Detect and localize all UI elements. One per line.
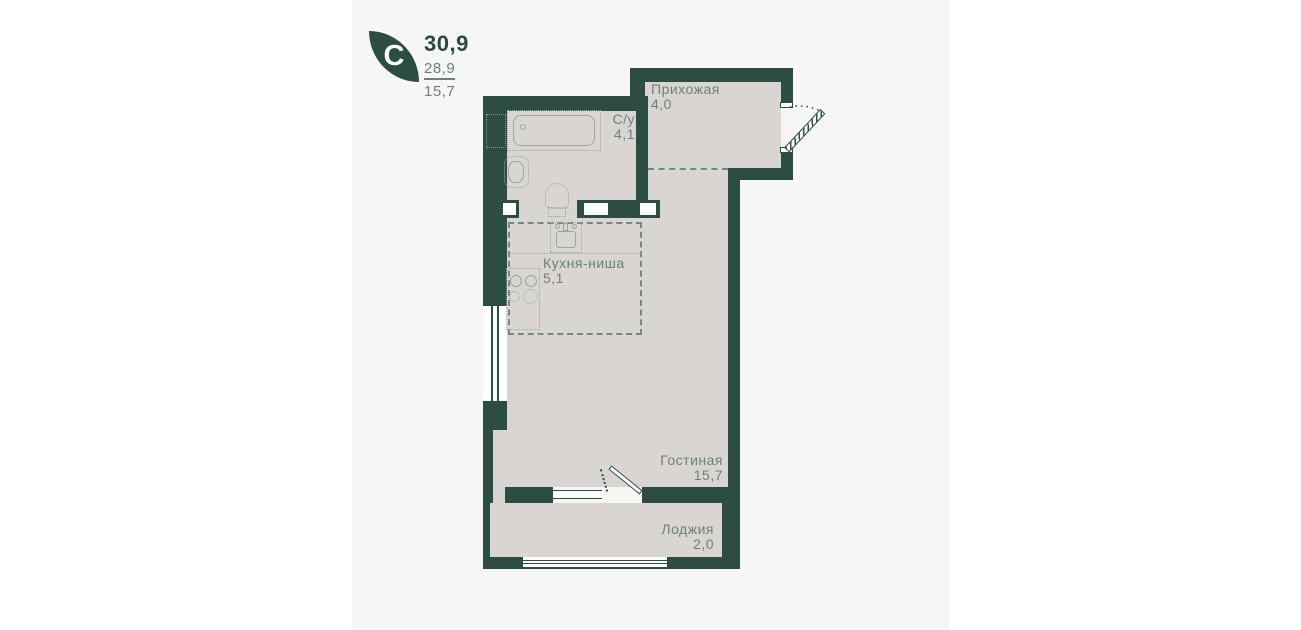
floorplan-panel: C 30,9 28,9 15,7 — [352, 0, 949, 630]
wall-stub-inset — [503, 203, 516, 215]
wall-interior-right — [577, 200, 660, 218]
kitchen-sink-basin — [556, 231, 576, 248]
wall-loggia-left — [483, 503, 490, 557]
room-label-bathroom: С/у 4,1 — [535, 112, 635, 141]
wall-stub — [500, 200, 519, 218]
room-area: 2,0 — [614, 537, 714, 551]
room-label-loggia: Лоджия 2,0 — [614, 522, 714, 551]
toilet-cistern — [548, 207, 566, 217]
stove-burner — [510, 275, 522, 287]
room-area: 4,0 — [651, 97, 720, 111]
room-label-living: Гостиная 15,7 — [623, 453, 723, 482]
wall-left-lower — [483, 430, 493, 503]
wall-hallway-bottom — [728, 168, 793, 180]
window-living-loggia — [553, 490, 602, 499]
wall-left-mid — [483, 401, 507, 430]
room-name: С/у — [613, 111, 636, 127]
room-area: 4,1 — [535, 127, 635, 141]
entrance-door-swing-arc — [780, 98, 844, 156]
stove-burner — [525, 275, 537, 287]
room-name: Прихожая — [651, 81, 720, 97]
window-mullion — [491, 306, 493, 401]
room-label-hallway: Прихожая 4,0 — [651, 82, 720, 111]
page: C 30,9 28,9 15,7 — [0, 0, 1301, 630]
towel-radiator — [486, 114, 506, 148]
room-area: 5,1 — [543, 271, 625, 285]
kitchen-faucet-knob — [572, 224, 577, 229]
bathroom-sink-basin — [508, 161, 524, 183]
wall-loggia-divider-right — [642, 487, 728, 503]
hallway-zone-boundary — [648, 168, 728, 170]
kitchen-faucet — [563, 223, 568, 231]
room-label-kitchen: Кухня-ниша 5,1 — [543, 256, 625, 285]
bathtub-faucet — [520, 124, 526, 130]
toilet-bowl — [545, 183, 569, 209]
wall-bathroom-right — [636, 96, 648, 200]
window-mullion — [497, 306, 499, 401]
stove-burner — [509, 291, 520, 302]
wall-hallway-top — [630, 68, 793, 82]
room-name: Кухня-ниша — [543, 255, 625, 271]
wall-main-top — [483, 96, 648, 111]
window-glazing-line — [523, 563, 667, 564]
kitchen-counter-line — [509, 253, 641, 254]
window-loggia — [523, 557, 667, 567]
duct-inset-2 — [640, 203, 656, 215]
window-glazing-line — [523, 560, 667, 561]
stove-burner — [523, 289, 538, 304]
window-left — [483, 306, 507, 401]
room-name: Гостиная — [660, 452, 723, 468]
kitchen-faucet-knob — [555, 224, 560, 229]
room-area: 15,7 — [623, 468, 723, 482]
wall-main-right — [728, 180, 740, 503]
room-name: Лоджия — [661, 521, 714, 537]
wall-loggia-right — [722, 503, 740, 569]
duct-inset-1 — [584, 203, 608, 215]
wall-loggia-divider-left — [505, 487, 553, 503]
floor-plan[interactable]: Прихожая 4,0 С/у 4,1 Кухня-ниша 5,1 Гост… — [352, 0, 949, 630]
